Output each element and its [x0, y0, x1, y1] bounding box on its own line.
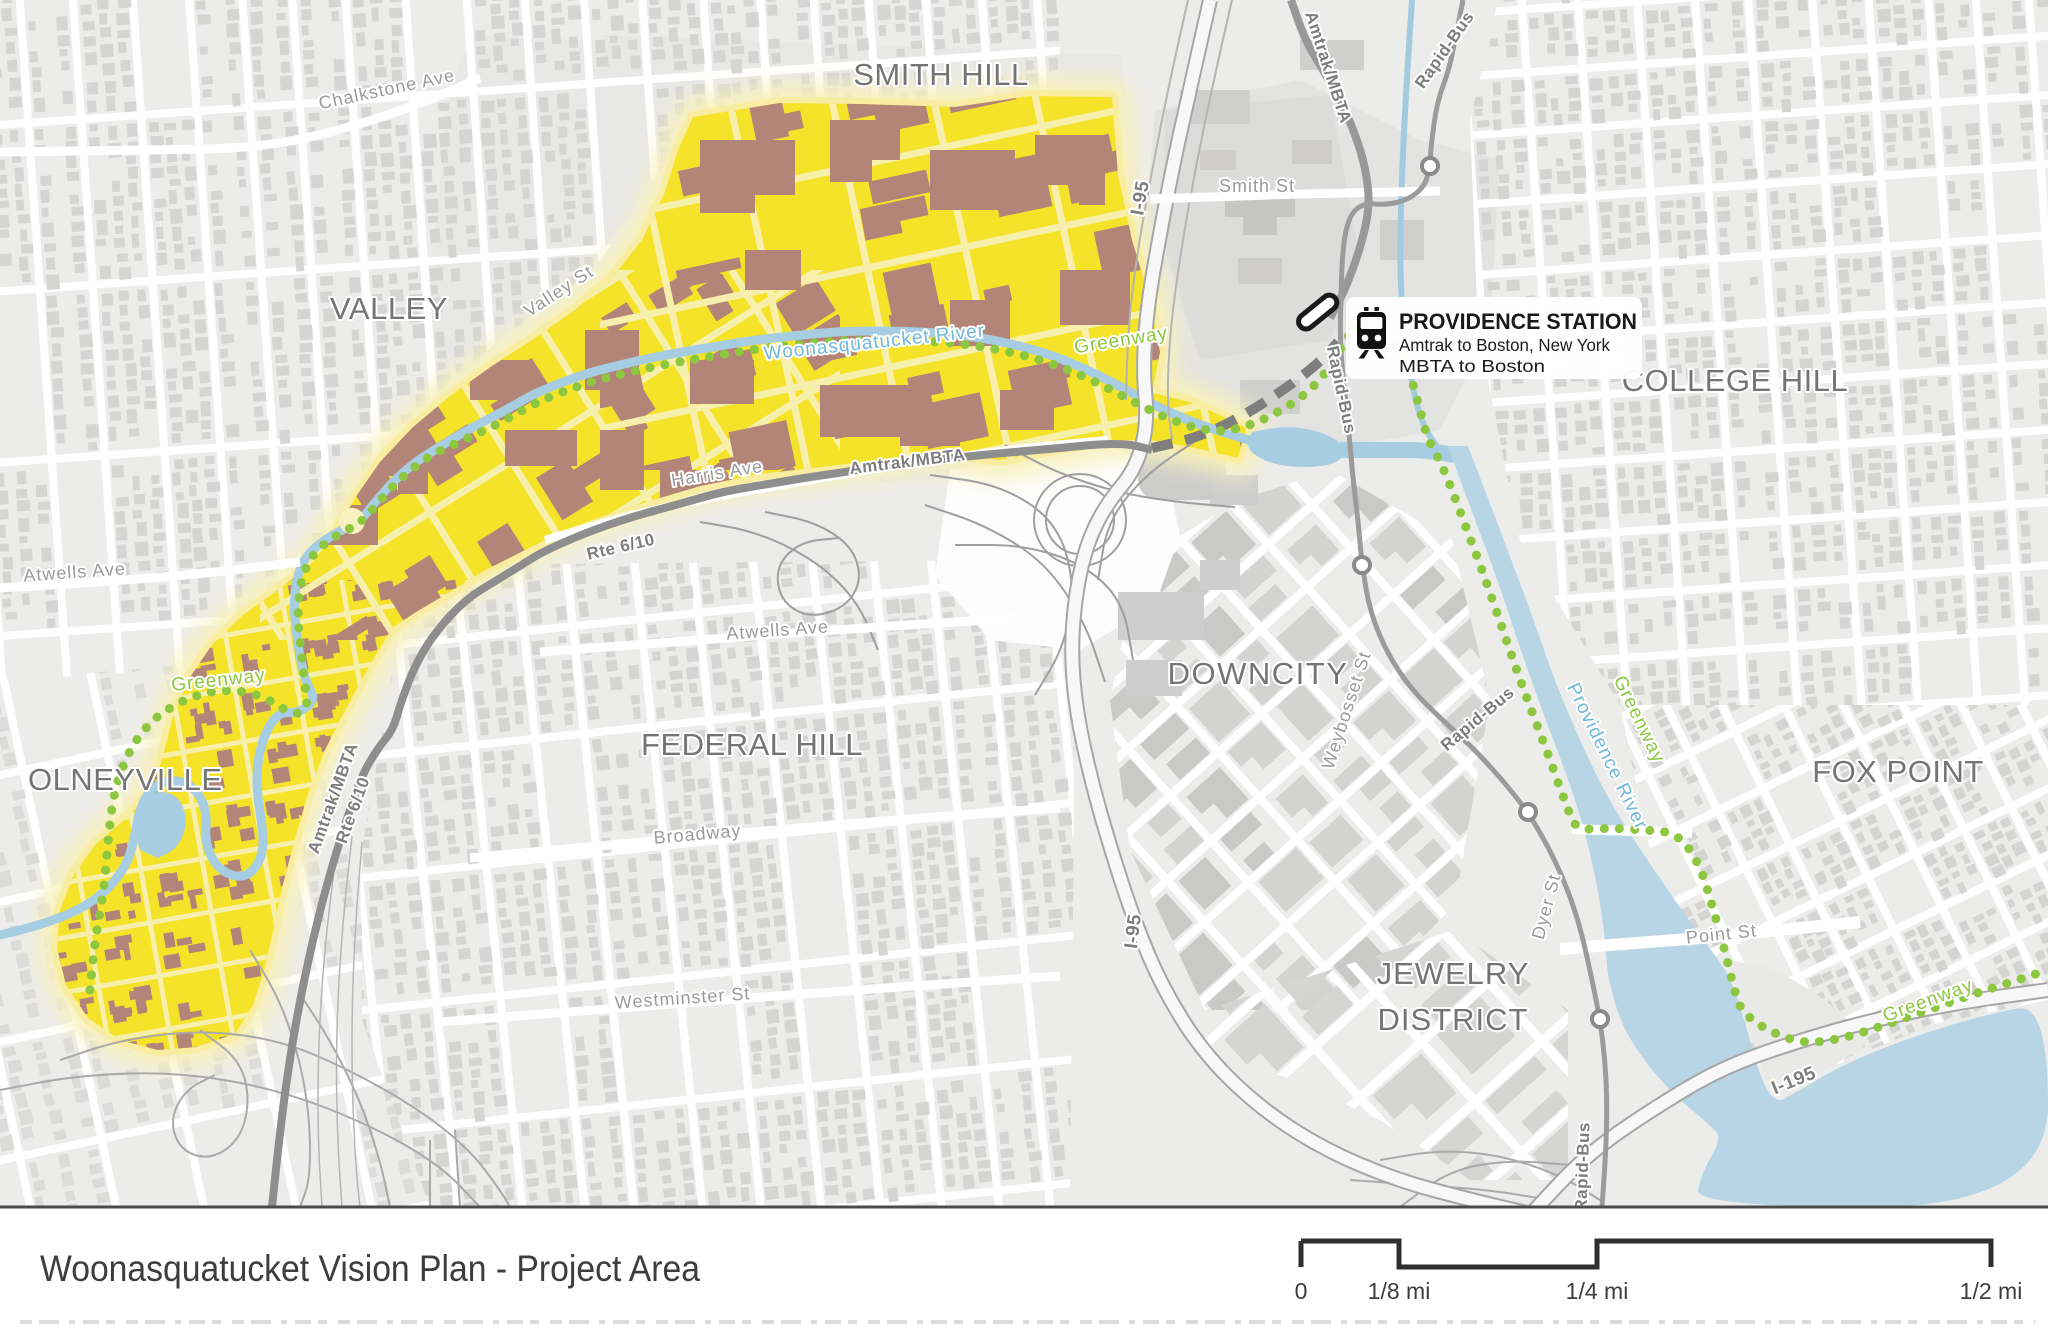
svg-text:Smith St: Smith St	[1219, 176, 1295, 196]
svg-text:DOWNCITY: DOWNCITY	[1168, 656, 1349, 691]
svg-text:PROVIDENCE STATION: PROVIDENCE STATION	[1399, 309, 1637, 334]
svg-text:OLNEYVILLE: OLNEYVILLE	[28, 762, 223, 797]
svg-text:SMITH HILL: SMITH HILL	[853, 57, 1029, 92]
svg-text:Amtrak to Boston, New York: Amtrak to Boston, New York	[1399, 335, 1610, 355]
svg-text:DISTRICT: DISTRICT	[1378, 1002, 1529, 1037]
svg-text:I-95: I-95	[1121, 913, 1146, 950]
svg-text:Rapid-Bus: Rapid-Bus	[1571, 1122, 1593, 1212]
svg-text:COLLEGE HILL: COLLEGE HILL	[1622, 363, 1849, 398]
svg-text:JEWELRY: JEWELRY	[1377, 956, 1530, 991]
svg-text:0: 0	[1295, 1278, 1308, 1304]
svg-text:Woonasquatucket Vision Plan -: Woonasquatucket Vision Plan - Project Ar…	[40, 1248, 700, 1289]
svg-text:1/8 mi: 1/8 mi	[1368, 1278, 1431, 1304]
svg-text:1/4 mi: 1/4 mi	[1566, 1278, 1629, 1304]
svg-text:FEDERAL HILL: FEDERAL HILL	[641, 727, 863, 762]
svg-text:1/2 mi: 1/2 mi	[1960, 1278, 2023, 1304]
svg-text:VALLEY: VALLEY	[330, 291, 448, 326]
svg-text:MBTA to Boston: MBTA to Boston	[1399, 356, 1545, 376]
svg-text:FOX POINT: FOX POINT	[1812, 754, 1984, 789]
